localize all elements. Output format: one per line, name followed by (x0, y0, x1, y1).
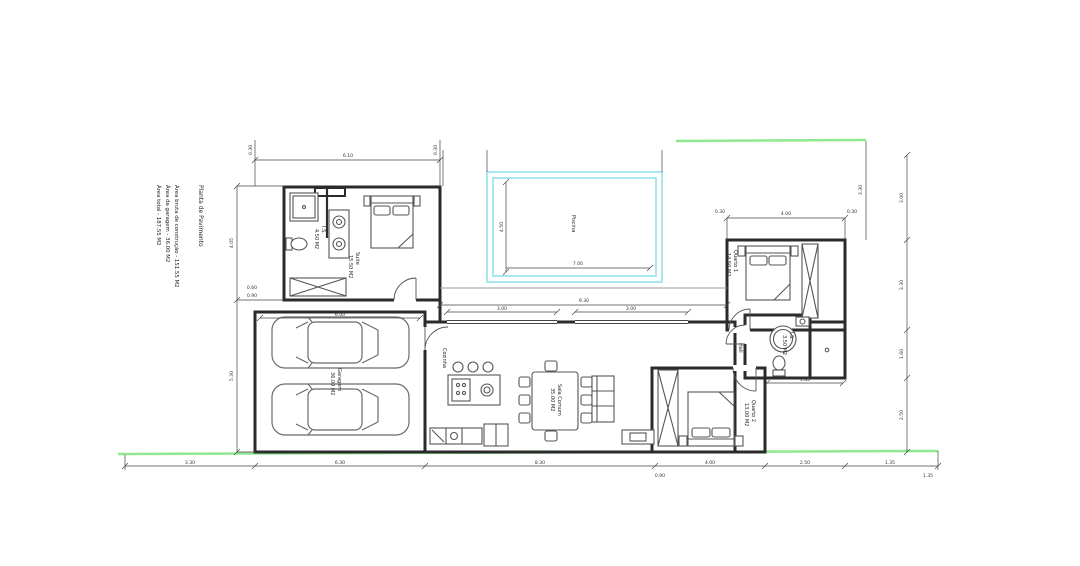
stool (483, 362, 493, 372)
car-2 (272, 384, 409, 435)
dim-label: 0.30 (433, 145, 439, 155)
room-area-suite-bath: 4.50 M2 (313, 229, 319, 249)
chair (545, 361, 557, 371)
floor-plan-canvas: 6.10 0.30 0.30 6.00 4.00 0.30 0.30 7.00 … (0, 0, 1080, 566)
room-area-bedroom1: 14.50 M2 (725, 253, 731, 276)
door-gap (394, 297, 416, 303)
pillow (750, 256, 767, 265)
dim-label: 3.30 (899, 280, 905, 290)
bath2-fixtures (770, 317, 829, 376)
bed-suite (371, 196, 413, 248)
storage-dot (825, 348, 829, 352)
dim-label: 4.00 (781, 211, 791, 217)
room-label-garage: Garagem (336, 368, 342, 391)
stool (453, 362, 463, 372)
pillow (712, 428, 730, 437)
nightstand (679, 436, 687, 446)
dim-label: 3.30 (185, 460, 195, 466)
dim-label: 0.90 (655, 473, 665, 479)
room-label-kitchen: Cozinha (441, 348, 447, 368)
toilet (291, 238, 307, 250)
bed-frame (746, 246, 790, 300)
dim-label: 0.90 (247, 293, 257, 299)
room-label-bath2: I.S. (788, 332, 794, 340)
wardrobe-bedroom1 (802, 244, 818, 318)
car-body (272, 384, 409, 435)
toilet (773, 356, 785, 370)
wall-niche (315, 188, 345, 196)
toilet-tank (773, 370, 785, 376)
dim-label: 6.00 (335, 312, 345, 318)
pillow (393, 206, 409, 215)
door-gap (742, 325, 748, 344)
car-cabin (308, 322, 362, 363)
dim-label: 0.30 (248, 145, 254, 155)
wardrobe-suite (290, 278, 346, 296)
bedroom2-furniture (658, 370, 743, 446)
nightstand (738, 246, 745, 256)
bedroom1-furniture (738, 244, 818, 318)
chair (519, 413, 530, 423)
car-rear-window (296, 389, 308, 430)
chair (581, 395, 592, 405)
door-gap (733, 365, 756, 371)
dim-label: 8.30 (535, 460, 545, 466)
bed-bedroom2 (688, 392, 734, 446)
dim-label: 1.35 (885, 460, 895, 466)
floor-plan-svg: 6.10 0.30 0.30 6.00 4.00 0.30 0.30 7.00 … (0, 0, 1080, 566)
sofa (592, 376, 614, 422)
dim-label: 3.00 (626, 306, 636, 312)
chair (545, 431, 557, 441)
dim-label: 3.30 (858, 185, 864, 195)
dim-label: 1.60 (899, 349, 905, 359)
plan-title: Planta de Pavimento (197, 185, 204, 247)
dim-label: 6.30 (335, 460, 345, 466)
pillow (769, 256, 786, 265)
nightstand (735, 436, 743, 446)
dim-label: 0.60 (247, 285, 257, 291)
dim-label: 9.30 (579, 298, 589, 304)
pillow (692, 428, 710, 437)
car-1 (272, 317, 409, 368)
dim-label: 4.00 (705, 460, 715, 466)
pillow (374, 206, 390, 215)
dim-label: 1.35 (923, 473, 933, 479)
shower (290, 193, 318, 221)
dim-label: 4.05 (229, 238, 235, 248)
tv-bench (622, 430, 654, 444)
car-body (272, 317, 409, 368)
area-line: Área total - 187.55 M2 (155, 185, 162, 245)
room-area-living: 35.00 M2 (549, 388, 555, 411)
area-line: Área bruta de construção - 151.55 M2 (173, 185, 180, 288)
dim-label: 3.00 (497, 306, 507, 312)
dim-label: 7.00 (573, 261, 583, 267)
dim-label: 0.30 (847, 209, 857, 215)
dim-label: 0.30 (715, 209, 725, 215)
nightstand (414, 196, 420, 206)
room-area-bedroom2: 13.00 M2 (743, 403, 749, 426)
dim-label: 6.10 (343, 153, 353, 159)
bed-bedroom1 (746, 246, 790, 300)
room-area-bath2: 3.50 M2 (781, 335, 787, 355)
title-block: Planta de Pavimento Área bruta de constr… (155, 185, 204, 288)
room-label-suite: Suite (354, 252, 360, 265)
chair (519, 377, 530, 387)
glazing-gap-2 (575, 318, 688, 326)
room-label-suite-bath: I.S. (320, 226, 326, 234)
room-label-pool: Piscina (570, 215, 576, 232)
pool (440, 172, 727, 288)
car-windshield (362, 389, 378, 430)
suite-furniture (286, 193, 420, 296)
dim-label: 2.50 (800, 460, 810, 466)
room-area-suite: 15.50 M2 (347, 255, 353, 278)
dim-label: 2.50 (899, 410, 905, 420)
dim-label: 4.50 (499, 222, 505, 232)
chair (519, 395, 530, 405)
property-line-top (676, 140, 866, 141)
bath2-sink (796, 317, 809, 326)
car-rear-window (296, 322, 308, 363)
vanity (329, 210, 349, 258)
room-label-bedroom1: Quarto 1 (732, 250, 738, 272)
stool (468, 362, 478, 372)
car-windshield (362, 322, 378, 363)
nightstand (791, 246, 798, 256)
room-label-living: Sala Comum (556, 384, 562, 416)
dim-label: 3.00 (899, 193, 905, 203)
kitchen-furniture (430, 362, 508, 446)
dim-label: 5.30 (229, 371, 235, 381)
wardrobe-bedroom2 (658, 370, 678, 446)
room-area-garage: 36.00 M2 (329, 372, 335, 395)
room-label-hall: Hall (737, 343, 743, 353)
area-line: Área da garagem - 36.00 M2 (164, 185, 171, 262)
room-label-bedroom2: Quarto 2 (750, 400, 756, 422)
nightstand (364, 196, 370, 206)
chair (581, 413, 592, 423)
dim-label: 1.80 (800, 377, 810, 383)
door-hall-garage (425, 327, 448, 350)
living-furniture (592, 376, 654, 444)
glazing-gap-1 (447, 318, 557, 326)
door-suite (394, 278, 416, 300)
chair (581, 377, 592, 387)
